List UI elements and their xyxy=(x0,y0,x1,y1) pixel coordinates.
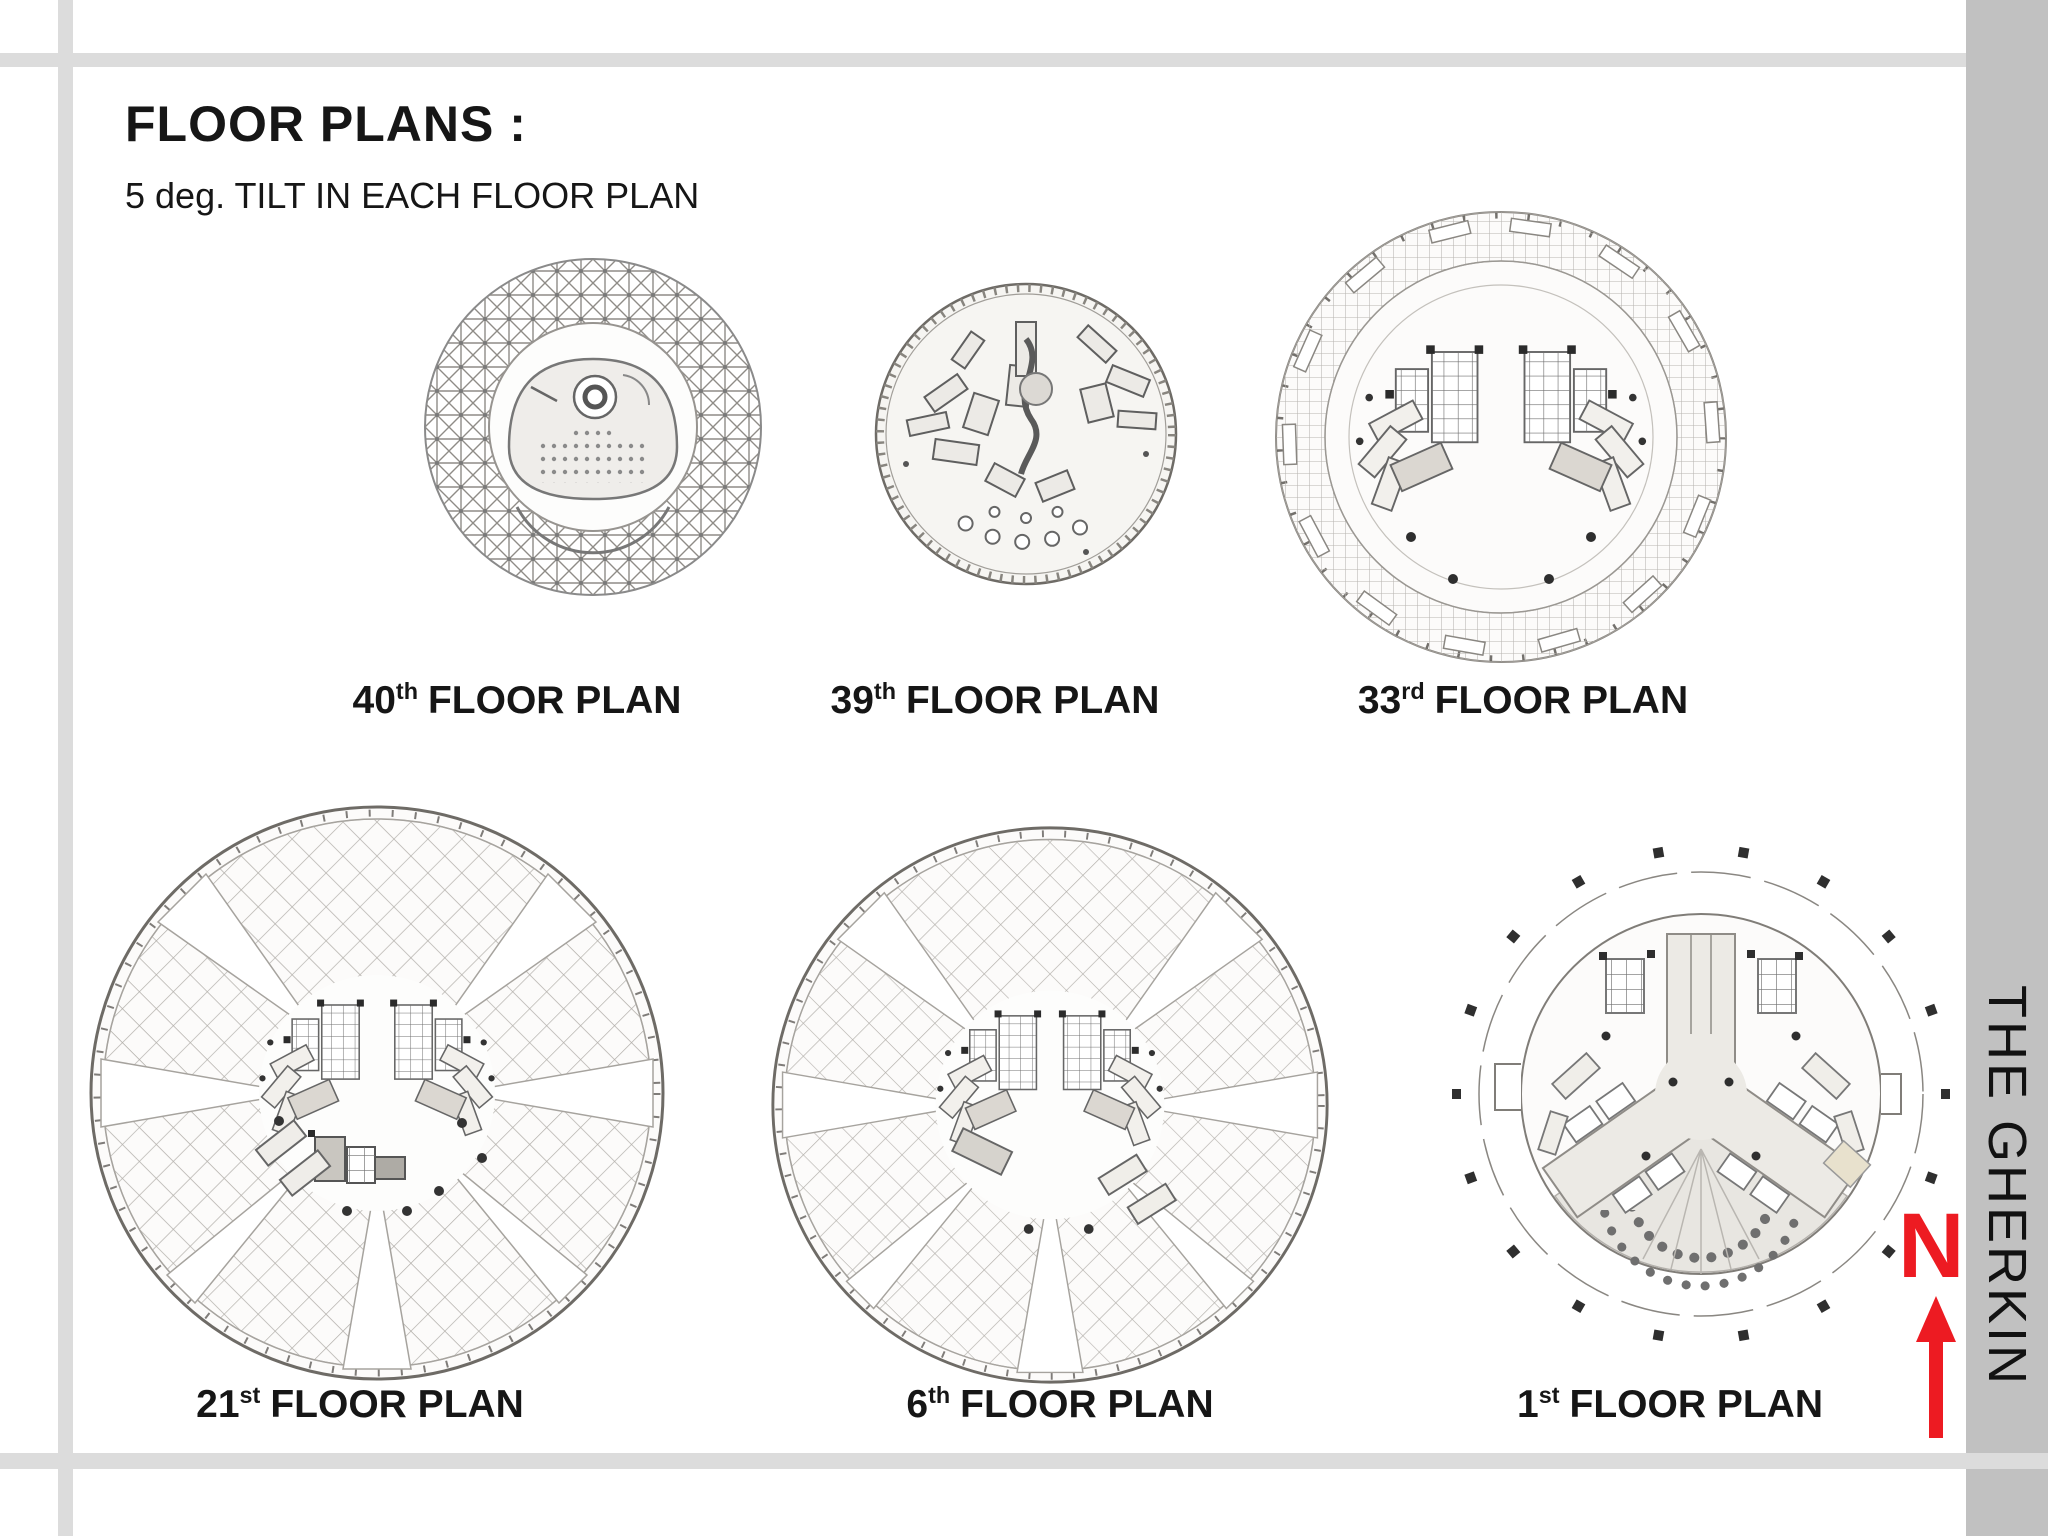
floor-caption: FLOOR PLAN xyxy=(960,1383,1213,1426)
floor-plan-1-drawing xyxy=(1452,845,1950,1343)
caption-floor-21: 21stFLOOR PLAN xyxy=(150,1382,570,1427)
building-name-vertical-text: THE GHERKIN xyxy=(1976,985,2038,1455)
caption-floor-6: 6thFLOOR PLAN xyxy=(850,1382,1270,1427)
north-arrow-icon xyxy=(1910,1296,1962,1446)
frame-bar-top xyxy=(0,53,2048,67)
floor-caption: FLOOR PLAN xyxy=(270,1383,523,1426)
floor-suffix: th xyxy=(928,1382,950,1408)
floor-ordinal: 39 xyxy=(831,679,874,722)
floor-ordinal: 1 xyxy=(1517,1383,1539,1426)
floor-suffix: st xyxy=(240,1382,261,1408)
floor-suffix: th xyxy=(874,678,896,704)
slide: FLOOR PLANS : 5 deg. TILT IN EACH FLOOR … xyxy=(0,0,2048,1536)
floor-suffix: th xyxy=(396,678,418,704)
floor-caption: FLOOR PLAN xyxy=(1570,1383,1823,1426)
north-label: N xyxy=(1898,1200,1964,1292)
caption-floor-39: 39thFLOOR PLAN xyxy=(785,678,1205,723)
page-title: FLOOR PLANS : xyxy=(125,95,527,153)
floor-suffix: rd xyxy=(1401,678,1424,704)
frame-bar-bottom xyxy=(0,1453,2048,1469)
page-subtitle: 5 deg. TILT IN EACH FLOOR PLAN xyxy=(125,175,699,217)
sidebar: THE GHERKIN xyxy=(1966,985,2048,1455)
caption-floor-1: 1stFLOOR PLAN xyxy=(1460,1382,1880,1427)
floor-ordinal: 21 xyxy=(196,1383,239,1426)
floor-caption: FLOOR PLAN xyxy=(906,679,1159,722)
floor-caption: FLOOR PLAN xyxy=(1435,679,1688,722)
floor-plan-33-drawing xyxy=(1272,208,1730,666)
floor-plan-21-drawing xyxy=(88,804,666,1382)
frame-bar-left xyxy=(58,0,73,1536)
floor-suffix: st xyxy=(1539,1382,1560,1408)
floor-ordinal: 33 xyxy=(1358,679,1401,722)
caption-floor-33: 33rdFLOOR PLAN xyxy=(1313,678,1733,723)
floor-caption: FLOOR PLAN xyxy=(428,679,681,722)
floor-plan-6-drawing xyxy=(770,825,1330,1385)
floor-ordinal: 6 xyxy=(906,1383,928,1426)
floor-plan-39-drawing xyxy=(873,281,1179,587)
floor-plan-40-drawing xyxy=(423,257,763,597)
floor-ordinal: 40 xyxy=(353,679,396,722)
caption-floor-40: 40thFLOOR PLAN xyxy=(307,678,727,723)
